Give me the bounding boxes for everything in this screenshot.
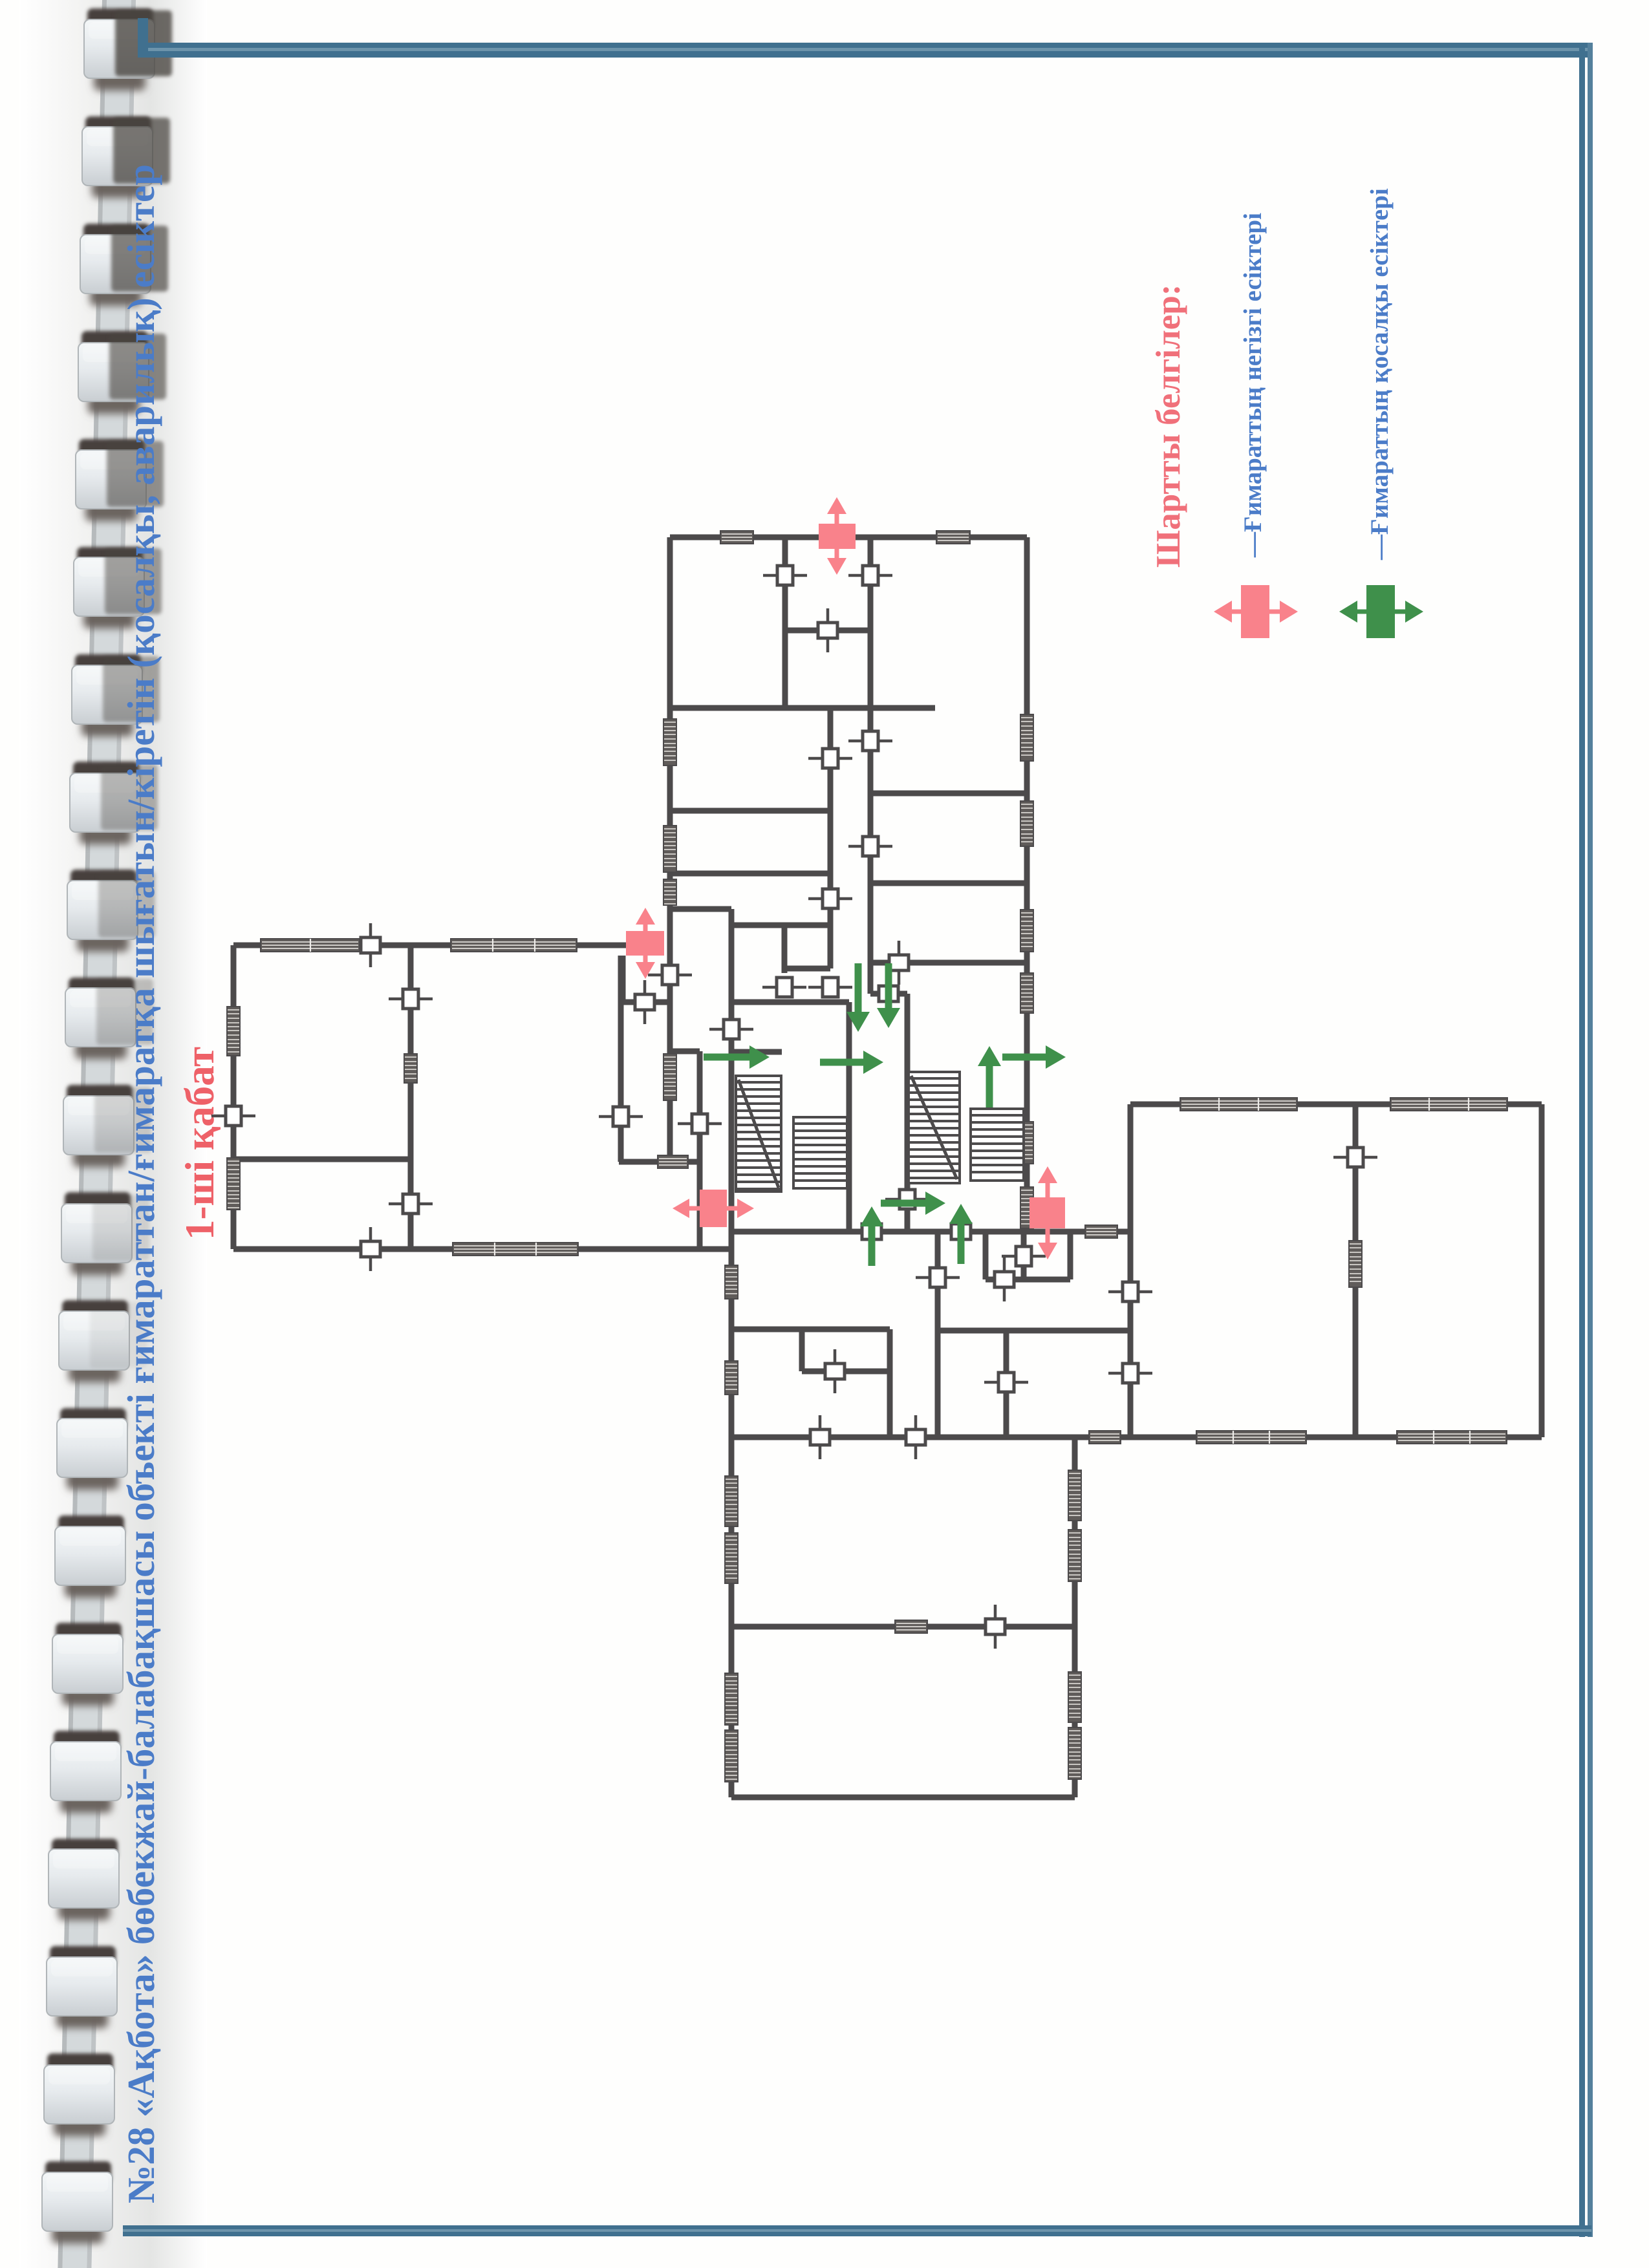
svg-text:1-ші қабат: 1-ші қабат bbox=[177, 1047, 222, 1240]
svg-text:—Ғимараттың негізгі есіктері: —Ғимараттың негізгі есіктері bbox=[1239, 213, 1267, 558]
svg-text:№28 «Ақбота» бөбекжай-балабақш: №28 «Ақбота» бөбекжай-балабақшасы объект… bbox=[120, 164, 162, 2203]
svg-text:Шартты белгілер:: Шартты белгілер: bbox=[1150, 284, 1187, 568]
svg-text:—Ғимараттың қосалқы есіктері: —Ғимараттың қосалқы есіктері bbox=[1366, 188, 1394, 561]
